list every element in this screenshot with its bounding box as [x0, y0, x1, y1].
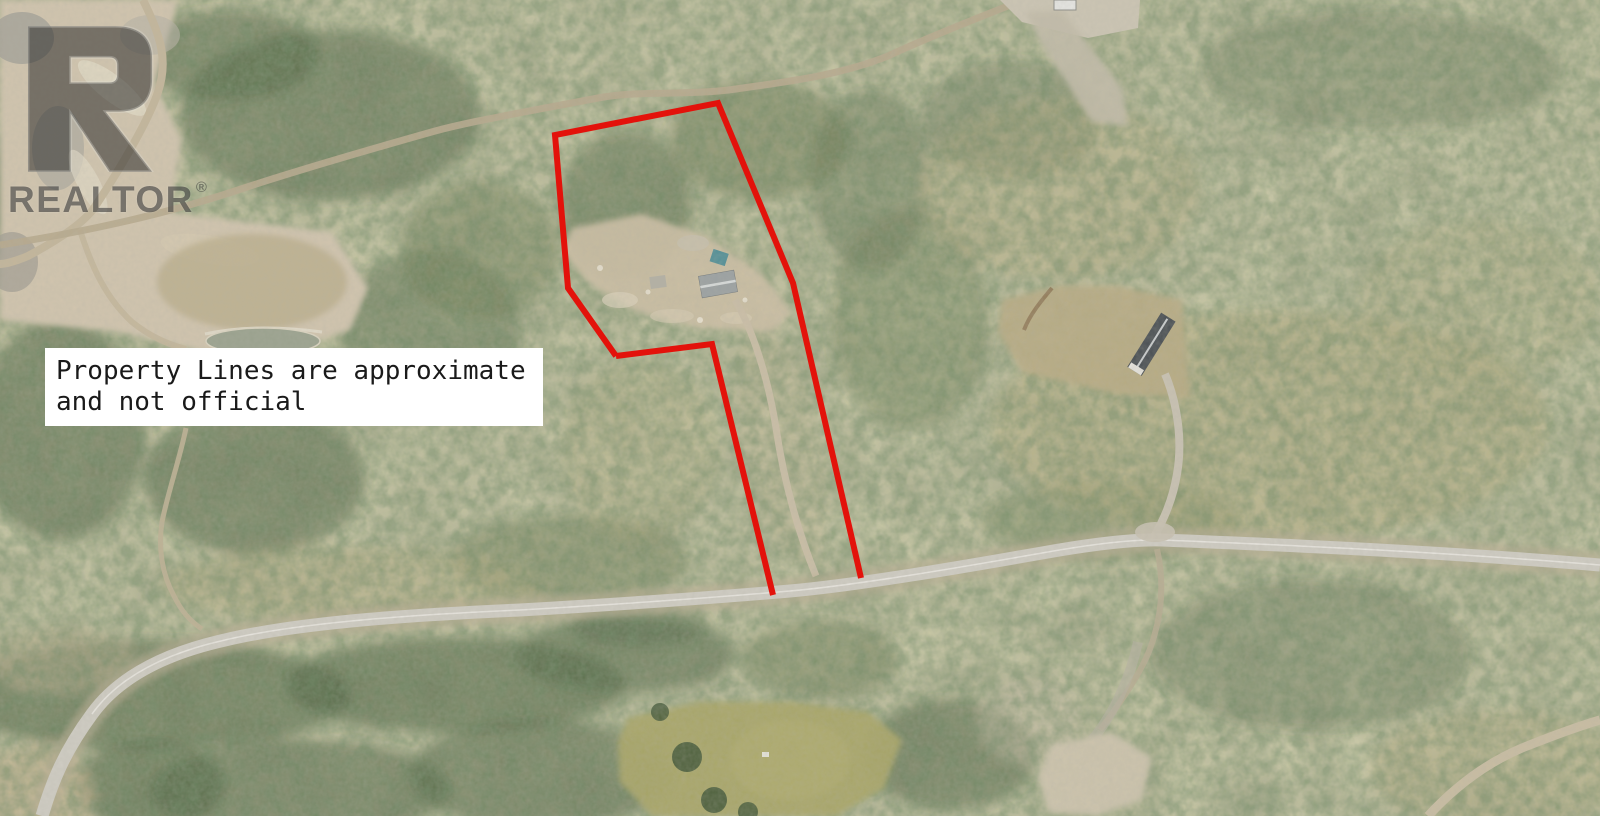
disclaimer-line-1: Property Lines are approximate: [56, 356, 532, 387]
disclaimer-line-2: and not official: [56, 387, 532, 418]
disclaimer-box: Property Lines are approximate and not o…: [45, 348, 543, 426]
aerial-property-photo: REALTOR® Property Lines are approximate …: [0, 0, 1600, 816]
